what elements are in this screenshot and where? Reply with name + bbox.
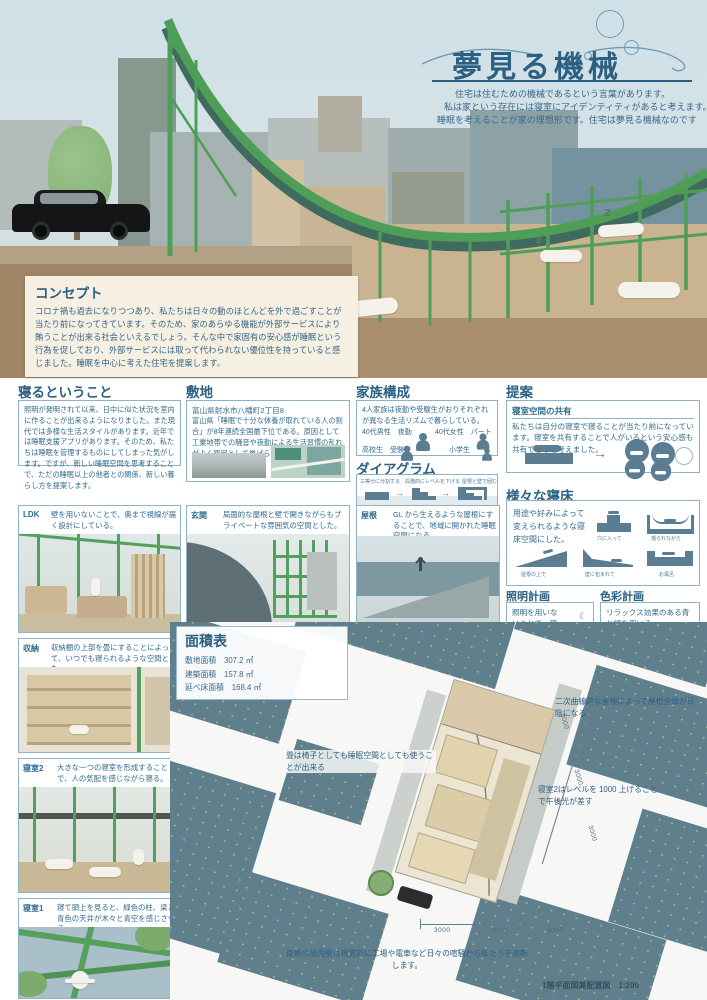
shape bbox=[647, 557, 693, 566]
sleeping-figure bbox=[69, 725, 89, 734]
room-render-bedroom1 bbox=[19, 927, 180, 998]
plan-note: 寝室2はレベルを 1000 上げることで午後光が差す bbox=[538, 784, 662, 807]
shape bbox=[647, 515, 650, 529]
room-label: 屋根 bbox=[361, 510, 377, 521]
section-heading-proposal: 提案 bbox=[506, 381, 533, 401]
outline-circle bbox=[675, 447, 693, 465]
green-beam bbox=[19, 534, 180, 551]
subtitle-line: 私は家という存在には寝室にアイデンティティがあると考えます。 bbox=[444, 101, 707, 114]
family-body: 4人家族は夜勤や受験生がおりそれぞれが異なる生活リズムで暮らしている。 bbox=[362, 405, 492, 427]
room-label: 寝室2 bbox=[23, 763, 43, 774]
sleeper-shape bbox=[533, 445, 561, 452]
arrow-icon: → bbox=[593, 445, 607, 461]
diagram-step-shape bbox=[466, 493, 474, 500]
bed-picto-label: 屋根の上で bbox=[521, 571, 546, 578]
bed-picto-label: 壁に包まれて bbox=[585, 571, 615, 578]
diagram-step-shape bbox=[428, 496, 436, 500]
presentation-board: z z Z 夢見る機械 住宅は住むための機械であるという言葉があります。 私は家… bbox=[0, 0, 707, 1000]
person-icon bbox=[479, 433, 486, 440]
plan-note: 二次曲線的な屋根によって屋根全体が日陰になる bbox=[555, 696, 695, 719]
site-map bbox=[271, 445, 345, 478]
sleeping-figure bbox=[618, 282, 680, 298]
concept-heading: コンセプト bbox=[35, 282, 348, 302]
shape bbox=[611, 559, 622, 562]
shape bbox=[583, 549, 633, 567]
title-underline bbox=[432, 80, 692, 82]
concept-body: コロナ禍も過去になりつつあり、私たちは日々の動のほとんどを外で過ごすことが当たり… bbox=[35, 305, 348, 370]
car-window bbox=[40, 193, 98, 204]
diagram-step-shape bbox=[420, 492, 428, 500]
shape bbox=[662, 552, 675, 555]
area-row: 敷地面積 307.2 ㎡ bbox=[185, 654, 339, 668]
diagram-step-shape bbox=[365, 492, 389, 500]
sleeping-figure bbox=[540, 250, 582, 262]
plan-caption: 1階平面図兼配置図 1:200 bbox=[542, 980, 639, 991]
person-icon bbox=[404, 446, 411, 453]
proposal-box: 寝室空間の共有 私たちは自分の寝室で寝ることが当たり前になっています。寝室を共有… bbox=[506, 400, 700, 473]
bed-picto-hammock: 揺られながら bbox=[647, 509, 697, 543]
dimension-tick bbox=[533, 919, 534, 929]
map-patch bbox=[275, 448, 301, 460]
room-label: LDK bbox=[23, 510, 39, 519]
sleep-z-mark: Z bbox=[604, 208, 611, 219]
area-value: 168.4 ㎡ bbox=[232, 683, 261, 692]
dimension-label: 3000 bbox=[434, 927, 450, 934]
grey-panel bbox=[307, 552, 337, 610]
shape bbox=[691, 515, 694, 529]
person-figure bbox=[91, 578, 100, 596]
bed-picto-label: 揺られながら bbox=[651, 535, 681, 542]
room-caption: 壁を用いないことで、奥まで視線が届く設計にしている。 bbox=[51, 510, 177, 531]
shape bbox=[515, 551, 567, 567]
shape bbox=[647, 529, 694, 534]
bed-picto-wall: 壁に包まれて bbox=[581, 547, 637, 581]
leaves bbox=[19, 971, 47, 997]
diagram-step-label: 三等分に分割する bbox=[360, 478, 400, 485]
diagram-step-shape bbox=[412, 488, 420, 500]
bubble-icon bbox=[596, 10, 624, 38]
bed-platform-shape bbox=[525, 453, 573, 464]
dimension-line bbox=[420, 924, 590, 925]
shape bbox=[543, 549, 553, 555]
area-label: 建築面積 bbox=[185, 670, 216, 679]
furniture bbox=[77, 596, 127, 618]
beds-body: 用途や好みによって変えられるような寝床空間にした。 bbox=[513, 507, 585, 547]
concept-box: コンセプト コロナ禍も過去になりつつあり、私たちは日々の動のほとんどを外で過ごす… bbox=[25, 276, 358, 377]
room-render-ldk bbox=[19, 534, 180, 632]
diagram-step-label: 屋根と壁で囲む bbox=[462, 478, 497, 485]
dimension-tick bbox=[590, 919, 591, 929]
room-caption: 大きな一つの寝室を形成することで、人の気配を感じながら寝る。 bbox=[57, 763, 177, 784]
shared-sleeper-icon bbox=[625, 459, 645, 479]
sleeping-box: 照明が発明されて以来、日中に似た状況を室内に作ることが出来るようになりました。ま… bbox=[18, 400, 181, 466]
furniture bbox=[25, 586, 67, 614]
diagram-box: 三等分に分割する 段階的にレベルを下げる 屋根と壁で囲む → → bbox=[356, 474, 498, 508]
room-box-genkan: 玄関 局面的な屋根と壁で開きながらもプライベートな雰囲気の空間とした。 bbox=[186, 505, 350, 625]
car-wheel bbox=[32, 222, 50, 240]
arrow-icon: → bbox=[395, 488, 404, 498]
dimension-label: 3000 bbox=[586, 825, 598, 843]
area-label: 延べ床面積 bbox=[185, 683, 224, 692]
sleeping-figure bbox=[89, 867, 121, 877]
curved-wall bbox=[187, 542, 272, 624]
tree-plan bbox=[368, 870, 394, 896]
shelf-grid bbox=[27, 675, 131, 745]
person-icon bbox=[419, 433, 427, 441]
area-value: 157.8 ㎡ bbox=[224, 670, 253, 679]
leaves bbox=[135, 927, 175, 951]
bed-picto-bath: お風呂 bbox=[647, 547, 697, 581]
section-heading-sleeping: 寝るということ bbox=[18, 381, 113, 401]
area-row: 建築面積 157.8 ㎡ bbox=[185, 668, 339, 682]
area-value: 307.2 ㎡ bbox=[224, 656, 253, 665]
room-render-yane bbox=[357, 536, 499, 624]
area-label: 敷地面積 bbox=[185, 656, 216, 665]
section-heading-site: 敷地 bbox=[186, 381, 213, 401]
dimension-label: 3000 bbox=[491, 927, 507, 934]
room-label: 収納 bbox=[23, 643, 39, 654]
diagram-step-shape bbox=[474, 496, 482, 500]
bed-picto-label: お風呂 bbox=[659, 571, 674, 578]
room-label: 寝室1 bbox=[23, 903, 43, 914]
diagram-wall-shape bbox=[484, 487, 487, 500]
family-box: 4人家族は夜勤や受験生がおりそれぞれが異なる生活リズムで暮らしている。 40代男… bbox=[356, 400, 498, 456]
sleeping-figure bbox=[45, 859, 73, 869]
site-address: 富山県射水市八幡町2丁目8 bbox=[192, 405, 344, 416]
sleeping-body: 照明が発明されて以来、日中に似た状況を室内に作ることが出来るようになりました。ま… bbox=[24, 405, 175, 491]
room-box-storage: 収納 収納棚の上部を畳にすることによって、いつでも寝られるような空間とした。 bbox=[18, 638, 181, 753]
diagram-step-shape bbox=[458, 489, 466, 500]
shape bbox=[647, 551, 655, 558]
hat-brim bbox=[65, 979, 95, 983]
sleep-z-mark: z bbox=[536, 236, 541, 246]
room-label: 玄関 bbox=[191, 510, 207, 521]
plan-note: 畳は椅子としても睡眠空間としても使うことが出来る bbox=[286, 750, 436, 773]
area-table-heading: 面積表 bbox=[185, 631, 339, 651]
shared-sleeper-icon bbox=[651, 461, 671, 481]
shape bbox=[685, 551, 693, 558]
beds-box: 用途や好みによって変えられるような寝床空間にした。 穴に入って 揺られながら 屋… bbox=[506, 500, 700, 586]
diagram-step-label: 段階的にレベルを下げる bbox=[405, 478, 460, 485]
dimension-label: 3000 bbox=[547, 927, 563, 934]
bed-picto-hole: 穴に入って bbox=[595, 509, 639, 543]
car-wheel bbox=[110, 222, 128, 240]
site-plan: 3000 3000 3000 3000 3000 3000 二次曲線的な屋根によ… bbox=[170, 622, 707, 1000]
car-plan bbox=[397, 885, 434, 909]
room-box-yane: 屋根 GL から生えるような屋根にすることで、地域に開かれた睡眠空間になる。 bbox=[356, 505, 500, 625]
area-row: 延べ床面積 168.4 ㎡ bbox=[185, 681, 339, 695]
city-block bbox=[217, 870, 389, 1000]
site-box: 富山県射水市八幡町2丁目8 富山県「睡眠で十分な休養が取れている人の割合」が8年… bbox=[186, 400, 350, 482]
room-render-genkan bbox=[187, 534, 349, 624]
moon-icon: ☾ bbox=[579, 611, 587, 622]
dimension-tick bbox=[477, 919, 478, 929]
dimension-tick bbox=[420, 919, 421, 929]
room-box-ldk: LDK 壁を用いないことで、奥まで視線が届く設計にしている。 bbox=[18, 505, 181, 633]
subtitle-line: 睡眠を考えることが家の理想形です。住宅は夢見る機械なのです bbox=[437, 114, 697, 127]
subtitle-line: 住宅は住むための機械であるという言葉があります。 bbox=[455, 88, 670, 101]
person-icon bbox=[484, 448, 490, 454]
arrow-icon: → bbox=[441, 488, 450, 498]
room-render-bedroom2 bbox=[19, 787, 180, 892]
family-member-label: 40代男性 夜勤 bbox=[362, 427, 412, 437]
area-table: 面積表 敷地面積 307.2 ㎡ 建築面積 157.8 ㎡ 延べ床面積 168.… bbox=[176, 626, 348, 700]
plan-note: 南側の局面壁は視覚的に工場や電車など日々の喧騒から私たちを遮断します。 bbox=[286, 948, 528, 971]
shape bbox=[597, 523, 631, 532]
family-member-label: 小学生 bbox=[449, 445, 470, 455]
shape bbox=[608, 511, 619, 514]
section-heading-family: 家族構成 bbox=[356, 381, 410, 401]
shape bbox=[664, 519, 676, 522]
shape bbox=[607, 515, 620, 523]
bed-picto-roof: 屋根の上で bbox=[515, 547, 571, 581]
room-box-bedroom1: 寝室1 寝て頭上を見ると、緑色の柱、梁と青色の天井が木々と青空を感じさせる。 bbox=[18, 898, 181, 999]
bed-picto-label: 穴に入って bbox=[597, 535, 622, 542]
room-caption: 局面的な屋根と壁で開きながらもプライベートな雰囲気の空間とした。 bbox=[223, 510, 347, 531]
sitting-figure bbox=[133, 849, 144, 865]
room-box-bedroom2: 寝室2 大きな一つの寝室を形成することで、人の気配を感じながら寝る。 bbox=[18, 758, 181, 893]
proposal-subheading: 寝室空間の共有 bbox=[512, 405, 694, 419]
site-photo bbox=[192, 453, 266, 478]
stair-wall bbox=[131, 554, 165, 618]
green-column bbox=[137, 667, 141, 752]
room-render-storage bbox=[19, 667, 180, 752]
